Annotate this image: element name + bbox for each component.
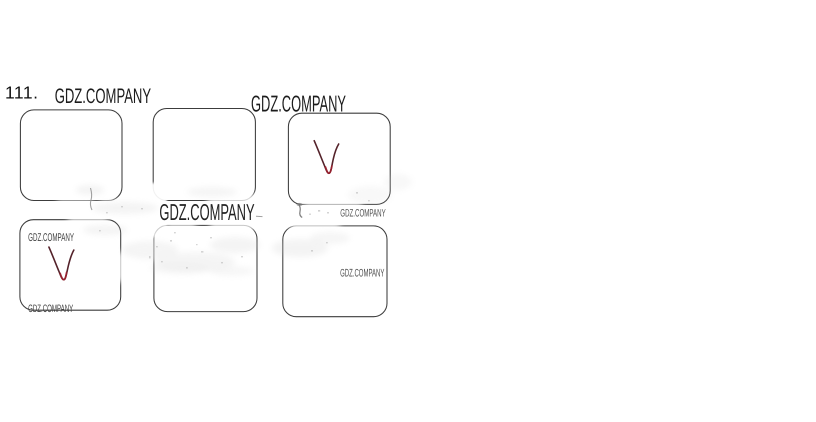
svg-text:GDZ.COMPANY: GDZ.COMPANY — [159, 199, 254, 225]
svg-text:GDZ.COMPANY: GDZ.COMPANY — [28, 232, 74, 244]
svg-text:GDZ.COMPANY: GDZ.COMPANY — [251, 91, 346, 117]
svg-text:111.: 111. — [5, 83, 38, 103]
svg-text:GDZ.COMPANY: GDZ.COMPANY — [340, 208, 385, 220]
svg-text:GDZ.COMPANY: GDZ.COMPANY — [340, 267, 385, 279]
svg-text:GDZ.COMPANY: GDZ.COMPANY — [55, 85, 151, 108]
svg-text:GDZ.COMPANY: GDZ.COMPANY — [28, 303, 73, 315]
